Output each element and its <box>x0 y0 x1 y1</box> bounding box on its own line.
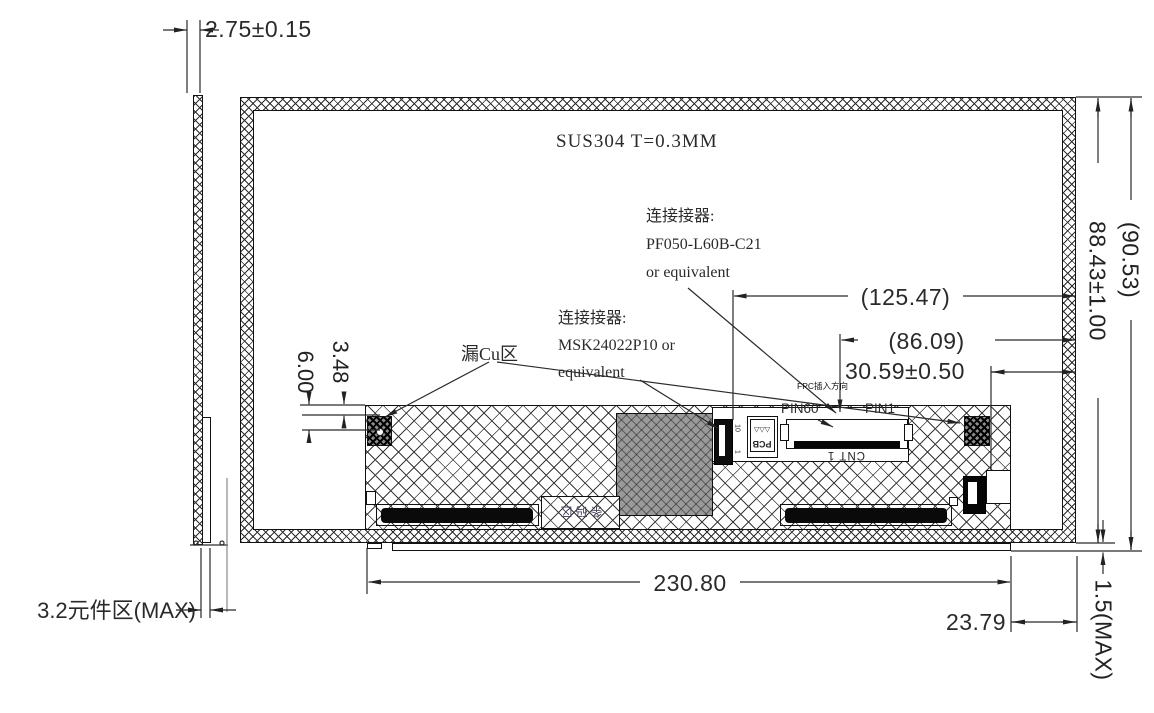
connector1-line2: PF050-L60B-C21 <box>646 231 762 259</box>
connector2-line3: equivalent <box>558 359 675 386</box>
dim-86: (86.09) <box>858 328 995 355</box>
connector1-line3: or equivalent <box>646 259 762 287</box>
material-note: SUS304 T=0.3MM <box>556 131 718 153</box>
dim-pcb-width: 230.80 <box>640 570 740 597</box>
cu-area-label: 漏Cu区 <box>461 340 518 366</box>
connector2-line2: MSK24022P10 or <box>558 332 675 359</box>
engineering-drawing-canvas: 10 1 △△△ PCB CNT 1 条码区 <box>0 0 1154 713</box>
connector2-line1: 连接接器: <box>558 305 675 332</box>
dim-125: (125.47) <box>848 284 963 311</box>
connector1-line1: 连接接器: <box>646 203 762 231</box>
dim-thickness: 2.75±0.15 <box>205 16 312 43</box>
connector2-note: 连接接器: MSK24022P10 or equivalent <box>558 305 675 386</box>
pin1-label: PIN1 <box>865 401 895 416</box>
dim-3059: 30.59±0.50 <box>845 358 965 385</box>
connector1-note: 连接接器: PF050-L60B-C21 or equivalent <box>646 203 762 287</box>
dim-right-offset: 23.79 <box>930 609 1006 636</box>
component-area-label: 3.2元件区(MAX) <box>2 593 196 625</box>
fpc-direction-note: FPC插入方向 <box>797 380 848 392</box>
pin60-label: PIN60 <box>781 401 819 416</box>
